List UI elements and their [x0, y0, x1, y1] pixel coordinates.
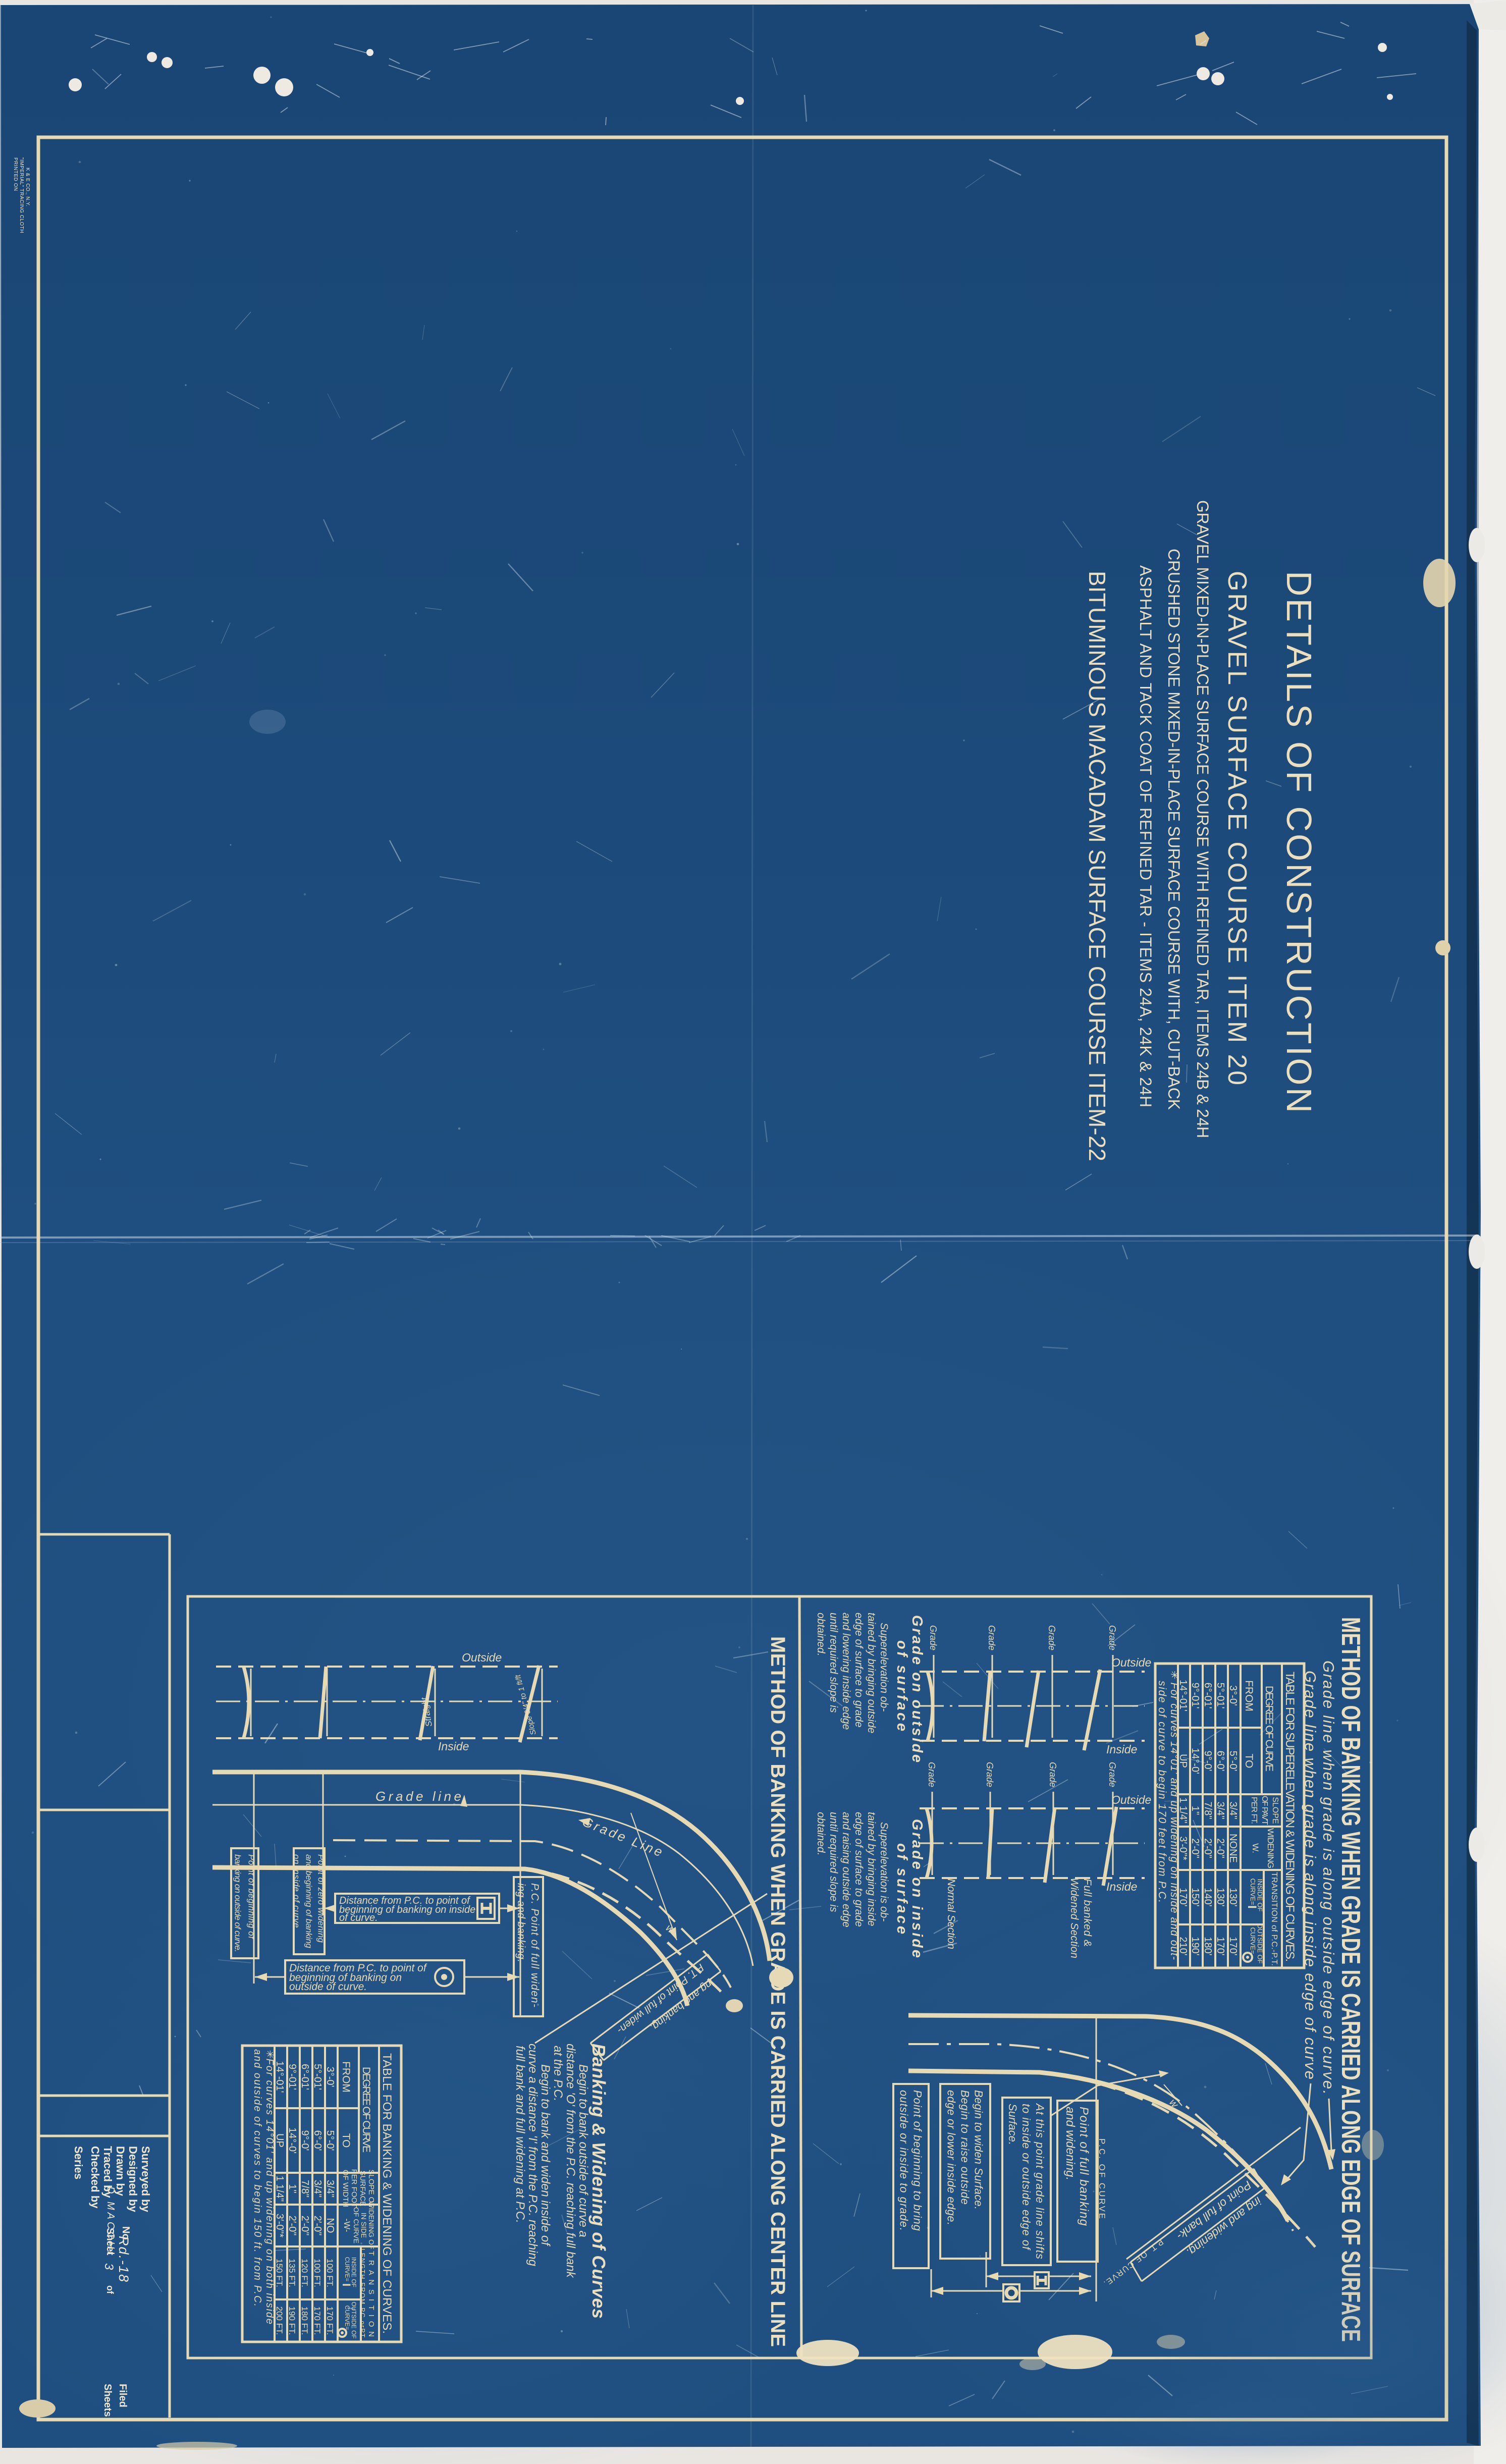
svg-text:9°-0': 9°-0'	[1202, 1751, 1213, 1772]
svg-text:of curve.: of curve.	[339, 1912, 378, 1923]
svg-text:to inside or outside edge of: to inside or outside edge of	[1020, 2104, 1033, 2251]
svg-text:9°-01': 9°-01'	[287, 2064, 298, 2090]
svg-text:Grade line: Grade line	[375, 1789, 461, 1804]
svg-text:Point of full banking: Point of full banking	[1077, 2107, 1091, 2226]
svg-text:14°-0': 14°-0'	[287, 2127, 298, 2154]
svg-text:At this point grade line shift: At this point grade line shifts	[1034, 2103, 1046, 2259]
svg-text:Begin to widen Surface.: Begin to widen Surface.	[973, 2090, 985, 2210]
svg-text:distance 'O' from the P.C. rea: distance 'O' from the P.C. reaching full…	[564, 2044, 577, 2279]
svg-text:Normal Section: Normal Section	[945, 1879, 957, 1949]
svg-text:tained by bringing inside: tained by bringing inside	[866, 1812, 877, 1926]
svg-text:BITUMINOUS MACADAM SURFACE COU: BITUMINOUS MACADAM SURFACE COURSE ITEM-2…	[1084, 571, 1110, 1161]
svg-text:190 FT.: 190 FT.	[287, 2307, 297, 2335]
svg-text:DEGREE OF CURVE: DEGREE OF CURVE	[1263, 1686, 1275, 1772]
svg-text:Inside: Inside	[1106, 1880, 1137, 1893]
svg-text:6°-0': 6°-0'	[1215, 1751, 1226, 1772]
svg-text:outside or inside to grade.: outside or inside to grade.	[898, 2090, 910, 2231]
svg-text:Outside: Outside	[1111, 1656, 1151, 1669]
svg-text:Point of beginning of: Point of beginning of	[246, 1854, 256, 1940]
svg-text:FROM: FROM	[340, 2061, 352, 2093]
svg-text:TABLE FOR BANKING & WIDENING O: TABLE FOR BANKING & WIDENING OF CURVES.	[380, 2053, 394, 2334]
svg-text:Superelevation ob-: Superelevation ob-	[878, 1623, 890, 1711]
svg-text:tained by bringing outside: tained by bringing outside	[866, 1613, 877, 1733]
svg-text:TABLE FOR SUPERELEVATION & WID: TABLE FOR SUPERELEVATION & WIDENING OF C…	[1283, 1672, 1297, 1962]
svg-text:2′-0": 2′-0"	[312, 2216, 323, 2236]
svg-text:Grade: Grade	[1107, 1625, 1117, 1650]
svg-text:TO: TO	[1243, 1754, 1255, 1769]
svg-text:CURVE=: CURVE=	[1249, 1927, 1257, 1954]
svg-text:Grade: Grade	[1048, 1762, 1058, 1787]
svg-text:135 FT.: 135 FT.	[287, 2259, 297, 2287]
svg-text:OF PAV'T: OF PAV'T	[1260, 1796, 1269, 1825]
svg-text:140': 140'	[1202, 1888, 1213, 1906]
svg-text:1": 1"	[287, 2184, 298, 2193]
svg-text:3/4": 3/4"	[1227, 1802, 1239, 1819]
svg-text:Outside: Outside	[462, 1651, 502, 1664]
svg-text:SURFACE: SURFACE	[358, 2171, 367, 2207]
svg-text:3°-0': 3°-0'	[1227, 1685, 1239, 1706]
svg-text:Inside: Inside	[438, 1740, 469, 1753]
svg-text:obtained.: obtained.	[815, 1613, 827, 1656]
svg-text:NONE: NONE	[1227, 1834, 1239, 1863]
svg-text:150': 150'	[1190, 1888, 1201, 1906]
svg-text:until required slope is: until required slope is	[828, 1613, 839, 1713]
svg-text:P.C. Point of full widen-: P.C. Point of full widen-	[529, 1883, 541, 2007]
svg-text:and lowering inside edge: and lowering inside edge	[840, 1613, 852, 1730]
svg-text:Grade: Grade	[987, 1625, 997, 1650]
svg-text:3′-0"*: 3′-0"*	[274, 2214, 285, 2238]
svg-text:Begin to raise outside: Begin to raise outside	[959, 2090, 972, 2205]
svg-text:Grade: Grade	[1107, 1762, 1117, 1787]
svg-text:OF WIDTH: OF WIDTH	[341, 2170, 350, 2207]
svg-text:9°-0': 9°-0'	[299, 2130, 310, 2151]
svg-text:and raising outside edge: and raising outside edge	[840, 1812, 852, 1927]
svg-text:1 1/4": 1 1/4"	[274, 2176, 285, 2202]
svg-text:and beginning of banking: and beginning of banking	[304, 1854, 313, 1949]
svg-text:GRAVEL SURFACE COURSE ITEM 20: GRAVEL SURFACE COURSE ITEM 20	[1222, 571, 1252, 1085]
svg-text:170 FT.: 170 FT.	[312, 2307, 322, 2335]
svg-text:Checked by: Checked by	[89, 2146, 101, 2209]
svg-text:Filed: Filed	[117, 2384, 128, 2407]
svg-text:full bank and full widening at: full bank and full widening at P.C.	[513, 2046, 527, 2223]
svg-text:Series: Series	[72, 2146, 85, 2179]
svg-text:Inside: Inside	[1106, 1743, 1137, 1756]
svg-text:170': 170'	[1227, 1937, 1239, 1955]
svg-text:✳ For curves 14°01' and up wid: ✳ For curves 14°01' and up widening on i…	[1168, 1670, 1180, 1960]
svg-text:GRAVEL MIXED-IN-PLACE SURFACE: GRAVEL MIXED-IN-PLACE SURFACE COURSE WIT…	[1194, 500, 1212, 1138]
svg-text:100 FT.: 100 FT.	[312, 2259, 322, 2287]
svg-text:Grade on outside: Grade on outside	[909, 1615, 925, 1762]
svg-text:INSIDE OF: INSIDE OF	[350, 2257, 357, 2287]
svg-text:2′-0": 2′-0"	[299, 2216, 310, 2236]
svg-text:DEGREE OF CURVE: DEGREE OF CURVE	[360, 2067, 372, 2153]
svg-text:OF CURVE: OF CURVE	[352, 2207, 360, 2243]
svg-text:curve a distance 'I' from the: curve a distance 'I' from the P.C. reach…	[526, 2044, 540, 2267]
svg-text:130': 130'	[1227, 1888, 1239, 1906]
svg-text:CURVE=: CURVE=	[1249, 1879, 1257, 1905]
svg-text:at the P.C.: at the P.C.	[551, 2046, 565, 2101]
svg-text:side of curve to begin 170 fee: side of curve to begin 170 feet from P.C…	[1156, 1681, 1168, 1903]
svg-text:banking on outside of curve.: banking on outside of curve.	[233, 1854, 242, 1952]
svg-text:5°-0': 5°-0'	[325, 2130, 336, 2151]
svg-text:Grade: Grade	[985, 1762, 995, 1787]
svg-text:WIDENING OF: WIDENING OF	[367, 2202, 375, 2249]
svg-text:edge of surface to grade: edge of surface to grade	[853, 1613, 865, 1728]
svg-text:200 FT.: 200 FT.	[275, 2307, 284, 2335]
svg-text:5°-01': 5°-01'	[1215, 1683, 1226, 1709]
svg-text:1": 1"	[1190, 1806, 1201, 1815]
svg-text:outside of curve.: outside of curve.	[289, 1981, 367, 1993]
svg-text:until required slope is: until required slope is	[828, 1812, 839, 1912]
svg-text:edge or lower inside edge.: edge or lower inside edge.	[945, 2090, 958, 2225]
svg-text:7/8": 7/8"	[299, 2180, 310, 2198]
svg-text:and outside of curves to begin: and outside of curves to begin 150 ft. f…	[252, 2049, 263, 2307]
svg-text:Sheets: Sheets	[102, 2384, 113, 2417]
svg-text:OUTSIDE OF: OUTSIDE OF	[1256, 1923, 1264, 1964]
svg-text:Widened Section: Widened Section	[1068, 1878, 1080, 1958]
svg-text:180': 180'	[1202, 1937, 1213, 1955]
svg-text:170 FT.: 170 FT.	[325, 2307, 335, 2335]
svg-text:Grade: Grade	[927, 1762, 937, 1787]
svg-text:I: I	[1245, 1905, 1259, 1909]
svg-text:Superelevation is ob-: Superelevation is ob-	[878, 1822, 890, 1921]
svg-text:PER FT.: PER FT.	[1250, 1797, 1258, 1824]
svg-text:2′-0": 2′-0"	[1202, 1838, 1213, 1858]
svg-text:TRANSITION of P.C.-P.T.: TRANSITION of P.C.-P.T.	[1270, 1872, 1278, 1966]
svg-text:Begin to bank and widen inside: Begin to bank and widen inside of	[539, 2064, 552, 2246]
svg-text:PRINTED ON: PRINTED ON	[13, 157, 18, 191]
svg-text:K & E CO., N.Y.: K & E CO., N.Y.	[25, 168, 30, 206]
svg-text:-W-: -W-	[342, 2218, 352, 2232]
svg-text:IN SIDE: IN SIDE	[360, 2213, 368, 2238]
svg-text:Designed by: Designed by	[127, 2146, 139, 2213]
svg-text:PER FOOT: PER FOOT	[350, 2169, 358, 2208]
svg-text:and widening.: and widening.	[1063, 2107, 1077, 2180]
svg-text:Full banked &: Full banked &	[1082, 1879, 1093, 1947]
svg-text:150 FT.: 150 FT.	[275, 2259, 284, 2287]
svg-text:of: of	[105, 2285, 115, 2294]
svg-text:3/4": 3/4"	[312, 2180, 323, 2198]
svg-text:SLOPE: SLOPE	[1271, 1797, 1279, 1824]
svg-text:edge of surface to grade: edge of surface to grade	[853, 1812, 865, 1927]
svg-text:Sheet: Sheet	[104, 2228, 116, 2256]
svg-text:6°-01': 6°-01'	[1202, 1683, 1213, 1709]
svg-text:Point of zero widening: Point of zero widening	[316, 1854, 326, 1943]
svg-text:ASPHALT AND TACK COAT OF REFIN: ASPHALT AND TACK COAT OF REFINED TAR - I…	[1137, 565, 1155, 1107]
svg-text:6°-0': 6°-0'	[312, 2130, 323, 2151]
svg-text:Outside: Outside	[1111, 1793, 1151, 1806]
svg-text:LENGTH FROM PC.orPT.: LENGTH FROM PC.orPT.	[359, 2248, 366, 2339]
svg-text:FROM: FROM	[1243, 1680, 1255, 1711]
svg-text:3°-0': 3°-0'	[325, 2067, 336, 2087]
svg-text:Grade: Grade	[928, 1625, 938, 1650]
svg-text:Banking & Widening of Curves: Banking & Widening of Curves	[588, 2044, 609, 2319]
svg-text:CRUSHED STONE MIXED-IN-PLACE S: CRUSHED STONE MIXED-IN-PLACE SURFACE COU…	[1165, 549, 1183, 1110]
svg-text:180 FT.: 180 FT.	[300, 2307, 309, 2335]
svg-text:9°-01': 9°-01'	[1190, 1683, 1201, 1709]
svg-text:Grade line when grade is along: Grade line when grade is along outside e…	[1320, 1660, 1337, 2095]
svg-text:Surveyed by: Surveyed by	[139, 2146, 152, 2213]
svg-text:"IMPERIAL" TRACING CLOTH: "IMPERIAL" TRACING CLOTH	[19, 157, 24, 233]
svg-text:Point of beginning to bring: Point of beginning to bring	[911, 2090, 924, 2231]
svg-text:3/4": 3/4"	[325, 2180, 336, 2198]
svg-text:7/8": 7/8"	[1202, 1802, 1213, 1819]
svg-text:3/4": 3/4"	[1215, 1802, 1226, 1819]
svg-text:DETAILS OF CONSTRUCTION: DETAILS OF CONSTRUCTION	[1279, 571, 1319, 1113]
svg-text:120 FT.: 120 FT.	[300, 2259, 309, 2287]
svg-text:UP: UP	[274, 2133, 285, 2148]
svg-text:obtained.: obtained.	[815, 1812, 827, 1855]
svg-text:5°-0': 5°-0'	[1227, 1751, 1239, 1772]
svg-text:on inside of curve.: on inside of curve.	[292, 1854, 301, 1931]
svg-text:Begin to bank outside of curve: Begin to bank outside of curve a	[576, 2064, 590, 2237]
svg-text:2′-0": 2′-0"	[287, 2216, 298, 2236]
svg-text:METHOD OF BANKING WHEN GRADE I: METHOD OF BANKING WHEN GRADE IS CARRIED …	[767, 1636, 789, 2347]
svg-text:TO: TO	[340, 2133, 352, 2148]
svg-text:ing and banking.: ing and banking.	[515, 1883, 527, 1962]
svg-text:3: 3	[102, 2263, 116, 2270]
svg-text:CURVE=: CURVE=	[344, 2257, 351, 2282]
svg-text:NO: NO	[325, 2218, 336, 2233]
svg-text:WIDENING: WIDENING	[1266, 1828, 1275, 1868]
svg-text:5°-01': 5°-01'	[312, 2064, 323, 2090]
svg-text:Surface.: Surface.	[1006, 2104, 1019, 2145]
svg-text:Rd.-18: Rd.-18	[116, 2236, 131, 2283]
svg-text:14°-01': 14°-01'	[274, 2061, 285, 2093]
svg-text:6°-01': 6°-01'	[299, 2064, 310, 2090]
svg-text:W.: W.	[1251, 1843, 1260, 1853]
svg-text:I: I	[340, 2283, 353, 2286]
svg-text:Grade: Grade	[1047, 1625, 1057, 1650]
svg-text:100 FT.: 100 FT.	[325, 2259, 335, 2287]
svg-text:2′-0": 2′-0"	[1215, 1838, 1226, 1858]
svg-text:130': 130'	[1215, 1888, 1226, 1906]
svg-text:TRANSITION: TRANSITION	[367, 2251, 375, 2337]
svg-text:2′-0": 2′-0"	[1190, 1838, 1201, 1858]
svg-text:190': 190'	[1190, 1937, 1201, 1955]
svg-text:OUTSIDE OF: OUTSIDE OF	[350, 2301, 357, 2338]
svg-text:170': 170'	[1215, 1937, 1226, 1955]
